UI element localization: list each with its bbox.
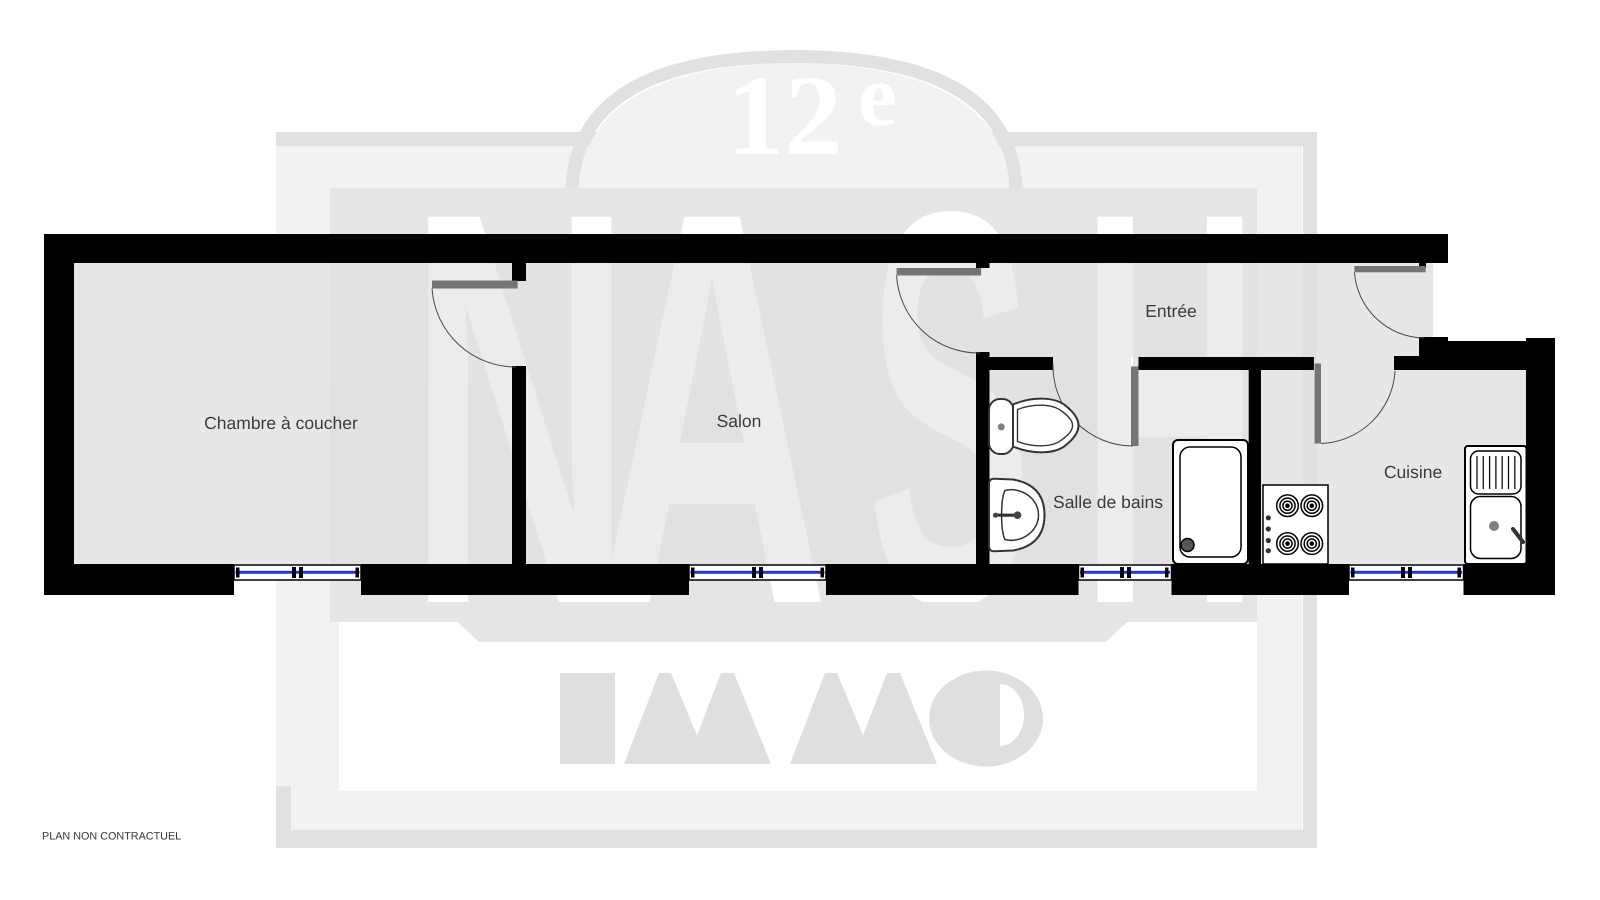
svg-text:PLAN NON CONTRACTUEL: PLAN NON CONTRACTUEL bbox=[42, 831, 181, 843]
svg-text:Salle de bains: Salle de bains bbox=[1053, 492, 1163, 512]
svg-text:Entrée: Entrée bbox=[1145, 301, 1197, 321]
svg-text:Chambre à coucher: Chambre à coucher bbox=[204, 413, 358, 433]
svg-text:Salon: Salon bbox=[717, 411, 762, 431]
svg-text:Cuisine: Cuisine bbox=[1384, 462, 1442, 482]
